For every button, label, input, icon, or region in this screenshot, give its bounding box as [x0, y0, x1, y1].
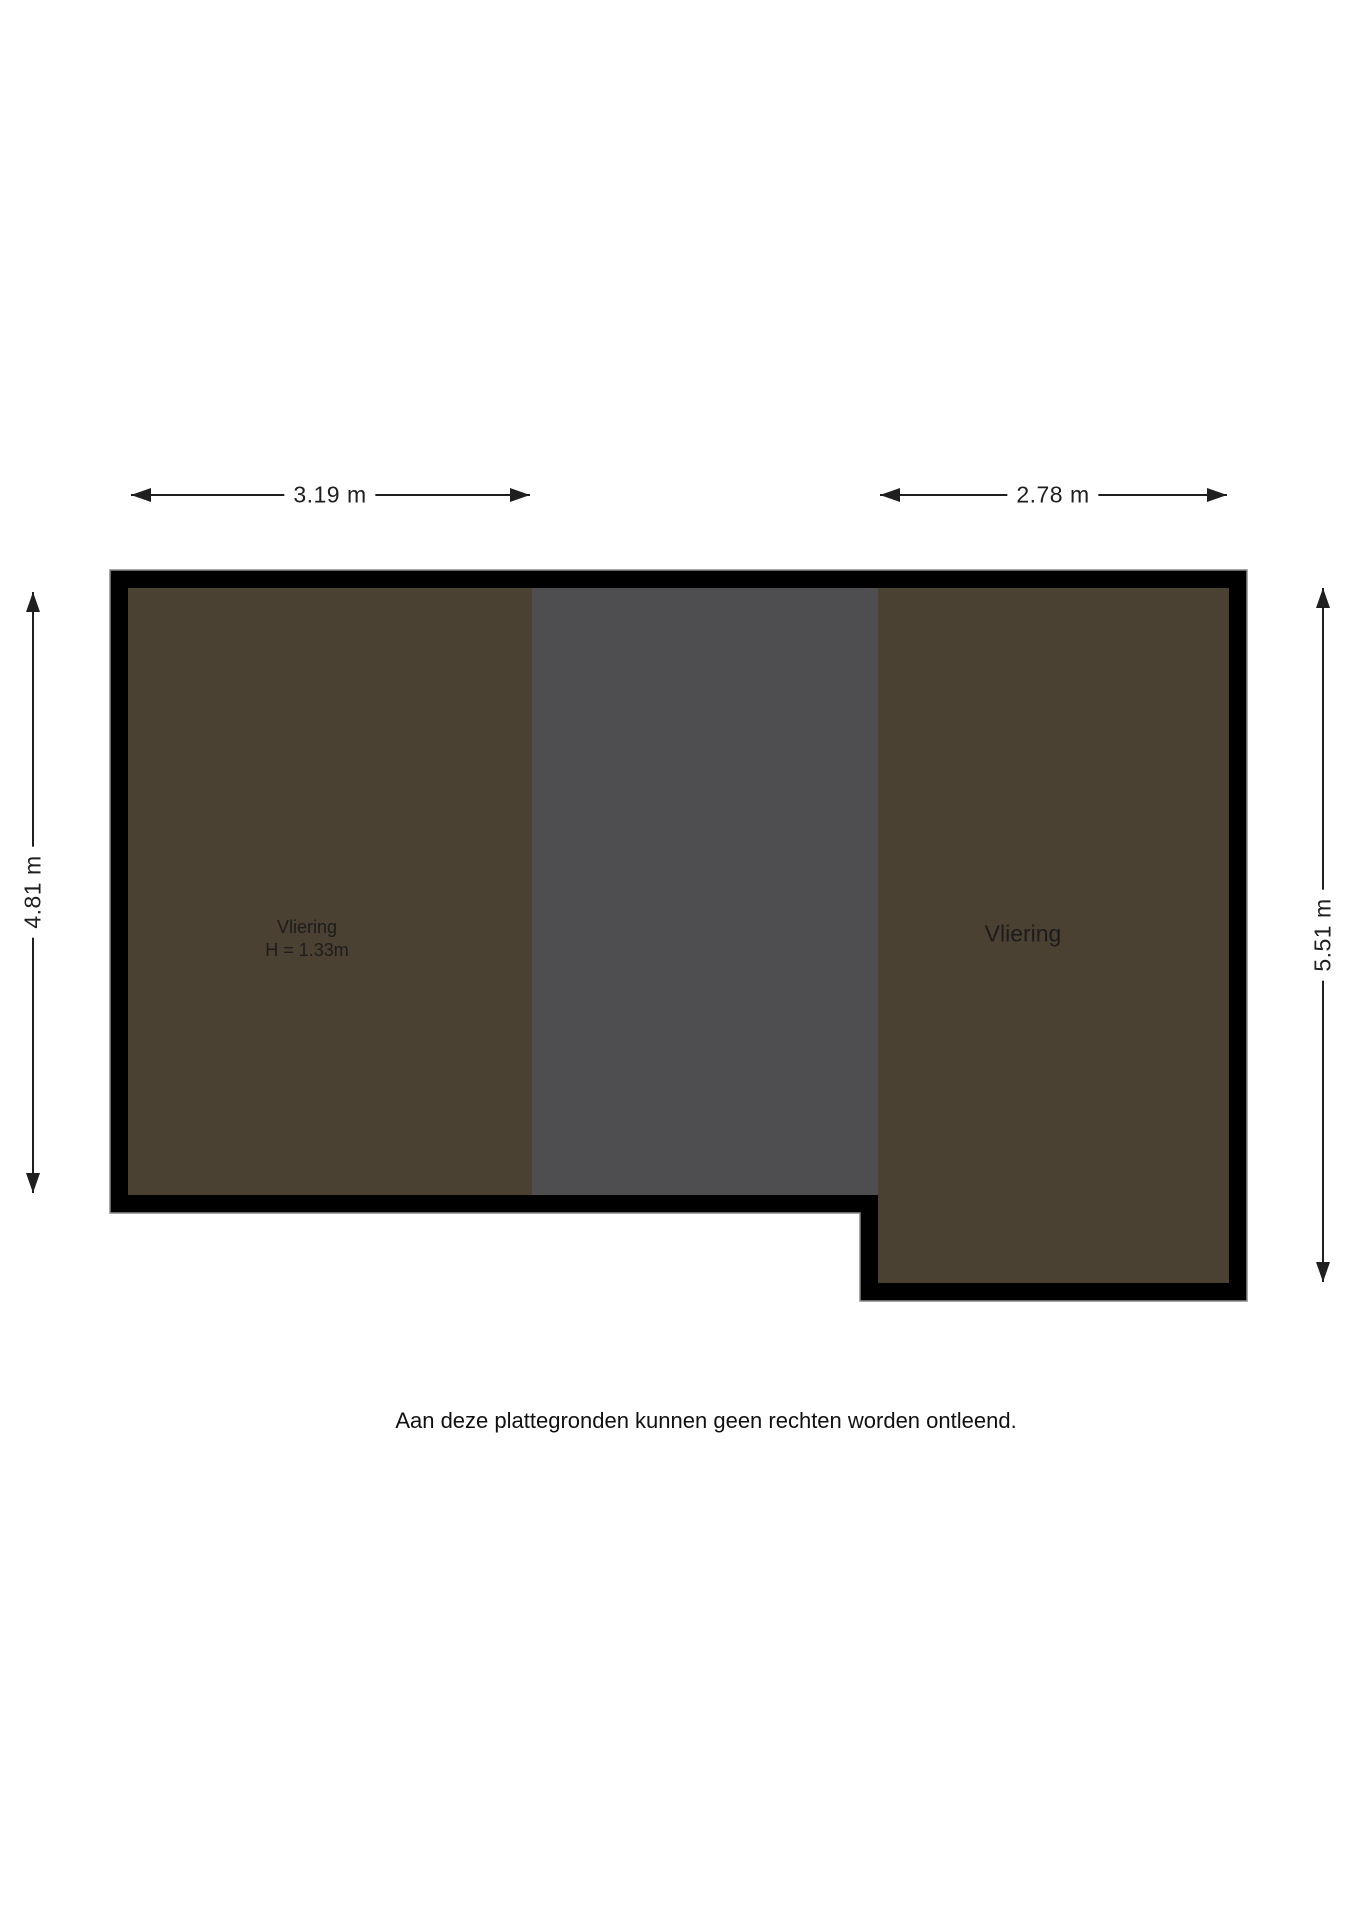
floorplan-page: 3.19 m 2.78 m 4.81 m 5.51 m Vliering H =… [0, 0, 1358, 1920]
arrowhead-left-south [26, 1173, 40, 1193]
dimension-label-left: 4.81 m [20, 846, 47, 937]
arrowhead-top-right-east [1207, 488, 1227, 502]
disclaimer-text: Aan deze plattegronden kunnen geen recht… [395, 1408, 1016, 1434]
room-height-left: H = 1.33m [265, 939, 349, 962]
room-middle-floor [532, 588, 878, 1195]
room-label-vliering-left: Vliering H = 1.33m [265, 916, 349, 962]
room-label-vliering-right: Vliering [985, 921, 1062, 948]
room-vliering-left-floor [128, 588, 532, 1195]
arrowhead-right-south [1316, 1262, 1330, 1282]
arrowhead-top-right-west [880, 488, 900, 502]
arrowhead-top-left-east [510, 488, 530, 502]
floorplan-drawing [0, 0, 1358, 1920]
dimension-label-top-left: 3.19 m [284, 482, 375, 509]
room-name-left: Vliering [265, 916, 349, 939]
dimension-label-top-right: 2.78 m [1007, 482, 1098, 509]
arrowhead-right-north [1316, 588, 1330, 608]
dimension-label-right: 5.51 m [1310, 889, 1337, 980]
arrowhead-left-north [26, 592, 40, 612]
arrowhead-top-left-west [131, 488, 151, 502]
